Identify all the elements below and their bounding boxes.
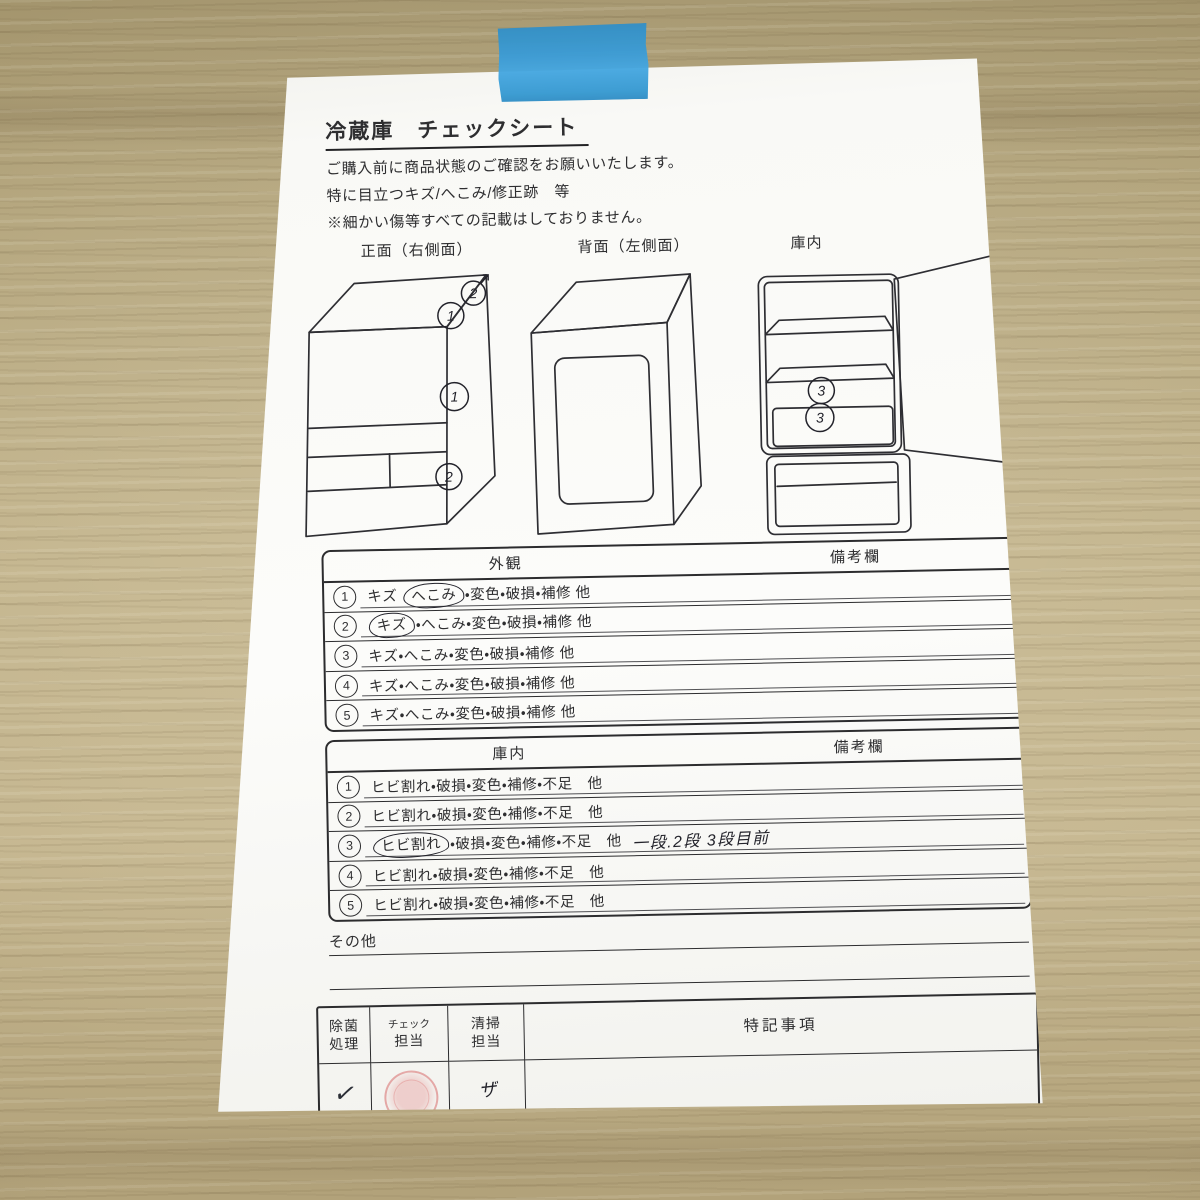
condition-options: ヒビ割れ・破損・変色・補修・不足 他 [371,772,603,797]
remarks-header: 備考欄 [691,733,1027,760]
fridge-diagrams: 正面（右側面） 1 2 [297,228,1033,551]
sign-off-table: 除菌 処理 チェック 担当 清掃 担当 特記事項 ✓ [316,992,1040,1126]
handwritten-circle: キズ [368,612,415,639]
row-number: 5 [339,894,362,917]
condition-options: キズ・へこみ・変色・破損・補修 他 [368,641,575,666]
interior-check-table: 庫内 備考欄 1 ヒビ割れ・破損・変色・補修・不足 他 2 ヒビ割れ・破損・変色… [325,727,1032,922]
condition-options: キズ・へこみ・変色・破損・補修 他 [368,609,593,638]
cleaning-staff-value-cell: ザ [449,1060,526,1121]
photo-background: 冷蔵庫 チェックシート ご購入前に商品状態のご確認をお願いいたします。 特に目立… [0,0,1200,1200]
condition-options: ヒビ割れ・破損・変色・補修・不足 他 [373,890,605,915]
svg-text:2: 2 [468,285,477,301]
fridge-back-figure: 背面（左側面） [517,233,728,546]
row-number: 3 [334,644,357,667]
disinfection-value-cell: ✓ [319,1063,372,1124]
masking-tape [497,23,650,103]
special-notes-header-cell: 特記事項 [524,994,1037,1060]
check-sheet-paper: 冷蔵庫 チェックシート ご購入前に商品状態のご確認をお願いいたします。 特に目立… [214,50,1046,1116]
check-mark: ✓ [331,1077,360,1111]
handwritten-note: 一段.2段 3段目前 [631,824,770,854]
intro-line: ※細かい傷等すべての記載はしておりません。 [327,201,1027,233]
fridge-interior-diagram: 3 3 [748,252,1025,542]
row-number: 1 [333,585,356,608]
intro-line: 特に目立つキズ/へこみ/修正跡 等 [326,174,1026,206]
interior-diagram-label: 庫内 [747,228,1019,254]
condition-options: キズ へこみ・変色・破損・補修 他 [367,580,591,609]
row-number: 3 [338,834,361,857]
row-number: 4 [338,864,361,887]
row-number: 2 [337,805,360,828]
condition-options: ヒビ割れ・破損・変色・補修・不足 他 [372,860,604,885]
disinfection-header-cell: 除菌 処理 [318,1007,371,1064]
hanko-stamp [381,1067,441,1127]
fridge-back-diagram [518,257,728,546]
handwritten-mark: 3 3 [805,377,835,432]
exterior-header: 外観 [323,549,687,577]
condition-options: ヒビ割れ・破損・変色・補修・不足 他 [372,828,622,858]
fridge-interior-figure: 庫内 3 [747,228,1025,542]
check-staff-value-cell [371,1062,450,1123]
fridge-front-figure: 正面（右側面） 1 2 [297,237,515,550]
special-notes-value-cell [525,1050,1038,1120]
page-title: 冷蔵庫 チェックシート [325,111,589,151]
svg-text:1: 1 [447,308,455,324]
other-section: その他 [329,918,1030,990]
back-diagram-label: 背面（左側面） [517,233,722,258]
remarks-header: 備考欄 [687,543,1023,570]
condition-options: キズ・へこみ・変色・破損・補修 他 [369,700,576,725]
condition-options: ヒビ割れ・破損・変色・補修・不足 他 [371,801,603,826]
interior-header: 庫内 [327,739,691,767]
row-number: 1 [337,775,360,798]
row-number: 5 [335,704,358,727]
handwritten-circle: ヒビ割れ [372,830,449,859]
row-number: 2 [334,615,357,638]
row-number: 4 [335,674,358,697]
sheet-content: 冷蔵庫 チェックシート ご購入前に商品状態のご確認をお願いいたします。 特に目立… [325,103,1044,1126]
intro-text: ご購入前に商品状態のご確認をお願いいたします。 特に目立つキズ/へこみ/修正跡 … [326,147,1027,233]
fridge-front-diagram: 1 2 1 2 [298,261,515,550]
condition-options: キズ・へこみ・変色・破損・補修 他 [369,671,576,696]
svg-text:1: 1 [450,388,458,404]
exterior-check-table: 外観 備考欄 1 キズ へこみ・変色・破損・補修 他 2 キズ・へこみ・変色・破… [321,537,1028,732]
wood-grain-streak [0,1120,1200,1190]
front-diagram-label: 正面（右側面） [297,237,509,262]
svg-text:3: 3 [817,382,825,398]
cleaning-staff-header-cell: 清掃 担当 [448,1004,525,1061]
check-staff-header-cell: チェック 担当 [370,1006,449,1063]
svg-text:2: 2 [444,469,453,485]
intro-line: ご購入前に商品状態のご確認をお願いいたします。 [326,147,1026,179]
handwritten-circle: へこみ [402,581,464,609]
handwritten-initial: ザ [477,1078,497,1103]
svg-text:3: 3 [816,409,824,425]
